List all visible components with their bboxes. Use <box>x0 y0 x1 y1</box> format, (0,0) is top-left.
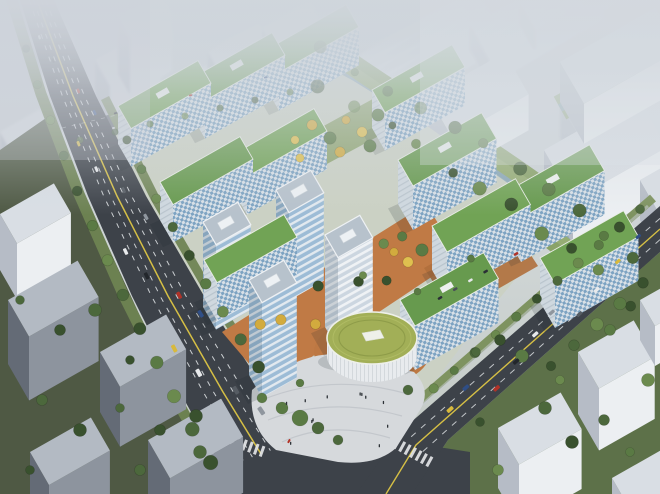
tree <box>313 281 324 292</box>
tree <box>217 306 228 317</box>
tree <box>333 435 343 445</box>
tree <box>546 361 556 371</box>
tree <box>16 296 25 305</box>
tree <box>403 257 413 267</box>
tree <box>276 314 287 325</box>
pedestrian <box>312 418 313 421</box>
rendering-canvas <box>0 0 660 494</box>
pedestrian <box>361 393 362 396</box>
tree <box>429 384 439 394</box>
tree <box>167 390 180 403</box>
tree <box>89 304 102 317</box>
tree <box>532 294 541 303</box>
tree <box>569 340 580 351</box>
tree <box>310 319 320 329</box>
tree <box>379 239 389 249</box>
tree <box>593 265 604 276</box>
tree <box>203 455 218 470</box>
pedestrian <box>387 425 388 428</box>
tree <box>126 356 135 365</box>
tree <box>135 465 146 476</box>
tree <box>573 258 583 268</box>
tree <box>255 319 266 330</box>
tree <box>190 410 203 423</box>
tree <box>535 227 549 241</box>
tree <box>168 222 178 232</box>
tree <box>512 312 522 322</box>
tree <box>102 255 113 266</box>
pedestrian <box>383 401 384 404</box>
tree <box>626 301 636 311</box>
tree <box>55 325 66 336</box>
tree <box>134 323 146 335</box>
tree <box>74 424 87 437</box>
tree <box>566 243 576 253</box>
fog-veil-left <box>0 0 150 160</box>
tree <box>312 422 324 434</box>
tree <box>467 255 474 262</box>
tree <box>390 248 398 256</box>
tree <box>556 376 565 385</box>
atmospheric-fog-overlay <box>0 0 660 215</box>
tree <box>37 395 48 406</box>
tree <box>476 418 485 427</box>
tree <box>599 415 610 426</box>
pedestrian <box>365 396 366 399</box>
tree <box>155 425 166 436</box>
aerial-rendering <box>0 0 660 494</box>
tree <box>87 220 98 231</box>
tree <box>638 277 649 288</box>
tree <box>416 244 428 256</box>
tree <box>553 276 563 286</box>
tree <box>642 374 655 387</box>
tree <box>235 334 247 346</box>
tree <box>292 410 308 426</box>
pedestrian <box>311 420 312 423</box>
tree <box>257 393 267 403</box>
tree <box>116 404 125 413</box>
tree <box>450 366 459 375</box>
tree <box>150 356 163 369</box>
tree <box>185 422 199 436</box>
tree <box>194 446 207 459</box>
tree <box>566 436 579 449</box>
pedestrian <box>327 395 328 398</box>
tree <box>614 222 625 233</box>
tree <box>397 232 407 242</box>
pedestrian <box>286 402 287 405</box>
tree <box>403 385 413 395</box>
tree <box>627 252 639 264</box>
tree <box>359 272 367 280</box>
tree <box>493 465 504 476</box>
tree <box>591 318 604 331</box>
pedestrian <box>290 442 291 445</box>
fog-veil-right <box>420 0 660 165</box>
tree <box>599 231 609 241</box>
tree <box>200 278 211 289</box>
tree <box>382 276 391 285</box>
tree <box>184 250 194 260</box>
tree <box>26 466 35 475</box>
tree <box>594 240 604 250</box>
pedestrian <box>379 444 380 447</box>
tree <box>626 448 635 457</box>
tree <box>539 402 552 415</box>
pedestrian <box>360 392 361 395</box>
tree <box>605 325 616 336</box>
tree <box>495 335 506 346</box>
pedestrian <box>305 399 306 402</box>
tree <box>296 379 304 387</box>
tree <box>117 289 129 301</box>
tree <box>414 288 421 295</box>
tree <box>253 361 265 373</box>
tree <box>472 348 481 357</box>
tree <box>614 297 626 309</box>
